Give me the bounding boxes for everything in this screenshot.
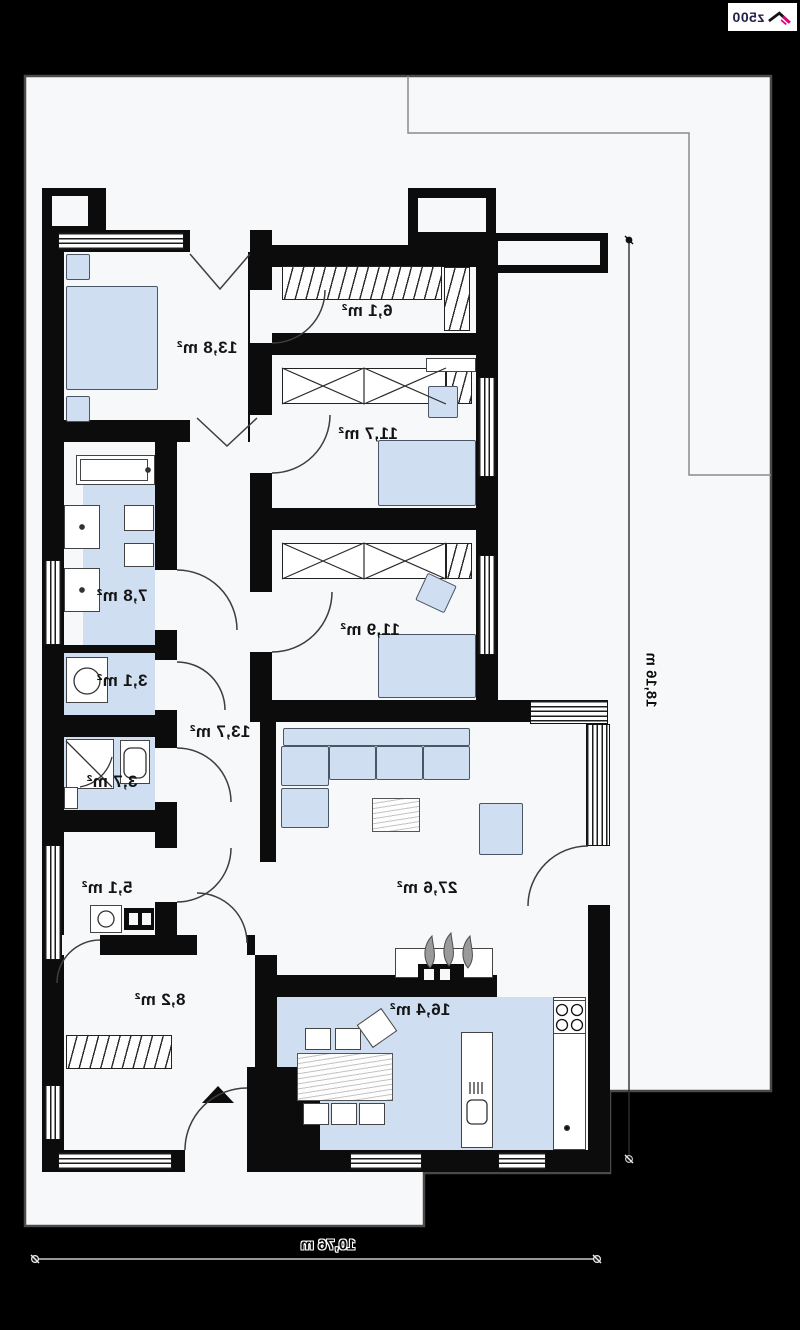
area-label-bathroom: 7,8 m² xyxy=(97,586,148,606)
sofa-seat xyxy=(423,746,470,780)
roof-icon xyxy=(767,9,793,26)
wardrobe xyxy=(282,543,446,579)
wall xyxy=(272,508,498,530)
armchair xyxy=(479,803,523,855)
wall xyxy=(272,700,530,722)
area-label-bedroom-2: 11,7 m² xyxy=(338,424,398,444)
wall xyxy=(260,722,276,862)
terrace-door-opening xyxy=(190,230,250,252)
kitchen-island xyxy=(461,1032,493,1148)
laundry-door-opening xyxy=(155,660,177,710)
entrance-arrow-icon xyxy=(202,1086,234,1103)
wall xyxy=(255,955,277,1067)
corridor-hall-opening xyxy=(197,935,247,955)
bedroom-door-opening xyxy=(190,420,248,442)
closet xyxy=(444,267,470,331)
area-label-wardrobe: 6,1 m² xyxy=(342,301,393,321)
area-label-corridor: 13,7 m² xyxy=(190,722,251,742)
coffee-table xyxy=(372,798,420,832)
window-slot xyxy=(52,196,88,226)
desk xyxy=(426,358,476,372)
sofa-back xyxy=(283,728,470,746)
dimension-label-width: 10,76 m xyxy=(300,1237,355,1254)
corner-window xyxy=(530,700,608,724)
bidet xyxy=(124,543,154,567)
firebox-door xyxy=(424,969,434,980)
corner-window xyxy=(586,724,610,846)
area-label-kitchen-dining: 16,4 m² xyxy=(390,1000,451,1020)
dimension-line-bottom xyxy=(31,1255,601,1263)
nightstand xyxy=(66,396,90,422)
area-label-hall: 8,2 m² xyxy=(135,990,186,1010)
area-label-master-bedroom: 13,8 m² xyxy=(177,338,238,358)
shower-door-opening xyxy=(155,748,177,802)
sofa-seat xyxy=(329,746,376,780)
area-label-office: 5,1 m² xyxy=(82,878,133,898)
dimension-label-height: 18,16 m xyxy=(643,652,660,707)
dining-table xyxy=(297,1053,393,1101)
wall xyxy=(42,810,177,832)
area-label-shower-room: 3,7 m² xyxy=(87,772,138,792)
bathtub-inner xyxy=(80,459,148,481)
chair xyxy=(303,1103,329,1125)
sofa-seat xyxy=(376,746,423,780)
entrance-opening xyxy=(185,1150,247,1172)
window xyxy=(58,1152,172,1170)
area-label-laundry: 3,1 m² xyxy=(97,671,148,691)
closet-rod xyxy=(282,266,442,300)
wall xyxy=(42,645,177,653)
wall-west xyxy=(42,252,64,1152)
sink xyxy=(64,568,100,612)
office-door-opening xyxy=(155,848,177,902)
radiator-slot xyxy=(129,913,138,925)
sink xyxy=(64,505,100,549)
window xyxy=(350,1152,422,1170)
nightstand xyxy=(66,254,90,280)
sofa-chaise xyxy=(281,788,329,828)
floor-plan-page: 13,8 m² 6,1 m² 11,7 m² 11,9 m² 7,8 m² 3,… xyxy=(0,0,800,1330)
z500-logo: z500 xyxy=(728,3,797,31)
wardrobe xyxy=(282,368,446,404)
stove xyxy=(553,1000,586,1034)
area-label-bedroom-3: 11,9 m² xyxy=(340,620,400,640)
window xyxy=(44,560,62,645)
bed xyxy=(66,286,158,390)
wardrobe-door-opening xyxy=(250,290,272,343)
window xyxy=(58,232,184,250)
desk-chair xyxy=(428,386,458,418)
chair xyxy=(331,1103,357,1125)
window xyxy=(44,845,62,960)
window xyxy=(478,555,496,655)
bed xyxy=(378,440,476,506)
wall xyxy=(272,333,498,355)
toilet xyxy=(124,505,154,531)
logo-text: z500 xyxy=(732,10,764,24)
wall xyxy=(42,715,177,737)
chimney-slot xyxy=(418,198,486,232)
bar-slot xyxy=(498,241,600,265)
chair xyxy=(305,1028,331,1050)
chair xyxy=(335,1028,361,1050)
window xyxy=(498,1152,546,1170)
bedroom2-door-opening xyxy=(250,415,272,473)
cabinet xyxy=(90,905,122,933)
hall-wardrobe xyxy=(66,1035,172,1069)
sofa-chaise xyxy=(281,746,329,786)
firebox-door xyxy=(440,969,450,980)
small-sink xyxy=(64,787,78,809)
bathroom-door-opening xyxy=(155,570,177,630)
area-label-living-room: 27,6 m² xyxy=(397,878,458,898)
bed xyxy=(378,634,476,698)
radiator-slot xyxy=(142,913,151,925)
wardrobe xyxy=(446,543,472,579)
chair xyxy=(359,1103,385,1125)
window xyxy=(478,377,496,477)
window xyxy=(44,1085,62,1140)
dimension-line-right xyxy=(625,236,633,1163)
bedroom3-door-opening xyxy=(250,592,272,652)
wall-east-living xyxy=(588,905,610,1152)
